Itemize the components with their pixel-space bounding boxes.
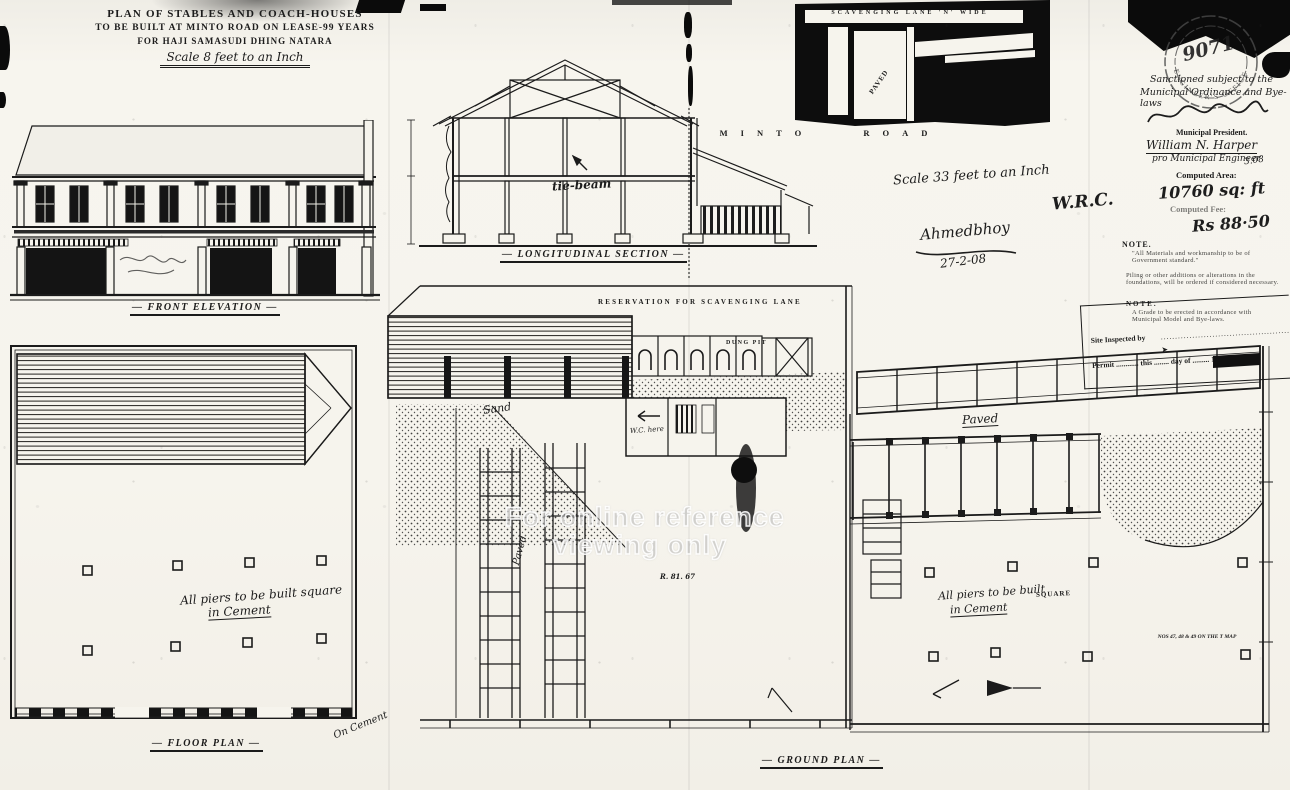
longitudinal-section-drawing [395,56,820,256]
floor-plan-label: FLOOR PLAN [150,738,263,752]
dung-pit-label: DUNG PIT [726,340,767,346]
note1-title: NOTE. [1122,240,1152,249]
title-block: PLAN OF STABLES AND COACH-HOUSES TO BE B… [70,8,400,68]
scan-stain [0,92,6,108]
paved-note-right: Paved [962,411,999,428]
pro-engineer-date: 3.08 [1243,155,1264,168]
front-elevation-label: FRONT ELEVATION [130,302,280,316]
ground-plan-label: GROUND PLAN [760,755,883,769]
plot-ref-note: R. 81. 67 [660,572,695,581]
right-piers-note-2: in Cement [950,601,1008,618]
president-signature [1142,98,1272,130]
plot-numbers-note: NOS 47, 48 & 49 ON THE T MAP [1142,634,1252,640]
scan-stain [420,4,446,11]
title-scale-note: Scale 8 feet to an Inch [160,50,309,68]
title-line-1: PLAN OF STABLES AND COACH-HOUSES [70,8,400,20]
wrc-initials: W.R.C. [1051,189,1114,214]
minto-road-label: MINTO ROAD [705,128,955,138]
computed-fee-value: Rs 88·50 [1191,211,1270,235]
title-line-2: TO BE BUILT AT MINTO ROAD ON LEASE-99 YE… [70,23,400,33]
scan-stain [612,0,732,5]
municipal-president-label: Municipal President. [1176,128,1247,137]
watermark-line-1: For online reference [505,502,775,533]
watermark-line-2: viewing only [505,530,775,561]
right-ground-plan-drawing [845,332,1290,744]
sanction-line-1: Sanctioned subject to the [1150,74,1273,85]
scanned-drawing-sheet: PLAN OF STABLES AND COACH-HOUSES TO BE B… [0,0,1290,790]
scan-stain [684,12,692,38]
scavenging-lane-label: SCAVENGING LANE 'N' WIDE [812,10,1008,16]
computed-area-label: Computed Area: [1176,170,1237,180]
reservation-label: RESERVATION FOR SCAVENGING LANE [598,298,802,306]
title-line-3: FOR HAJI SAMASUDI DHING NATARA [70,36,400,46]
note2-body: Piling or other additions or alterations… [1126,272,1284,286]
note1-body: "All Materials and workmanship to be of … [1132,250,1282,264]
engineer-signature: William N. Harper [1146,138,1257,154]
site-block-plan [795,0,1050,130]
scan-stain [0,26,10,70]
computed-area-value: 10760 sq: ft [1158,178,1266,203]
front-elevation-drawing [2,120,387,310]
computed-fee-label: Computed Fee: [1170,204,1226,214]
approval-signature: Ahmedbhoy [919,218,1010,244]
scale-33-note: Scale 33 feet to an Inch [893,163,1050,189]
floor-plan-drawing [5,328,367,736]
